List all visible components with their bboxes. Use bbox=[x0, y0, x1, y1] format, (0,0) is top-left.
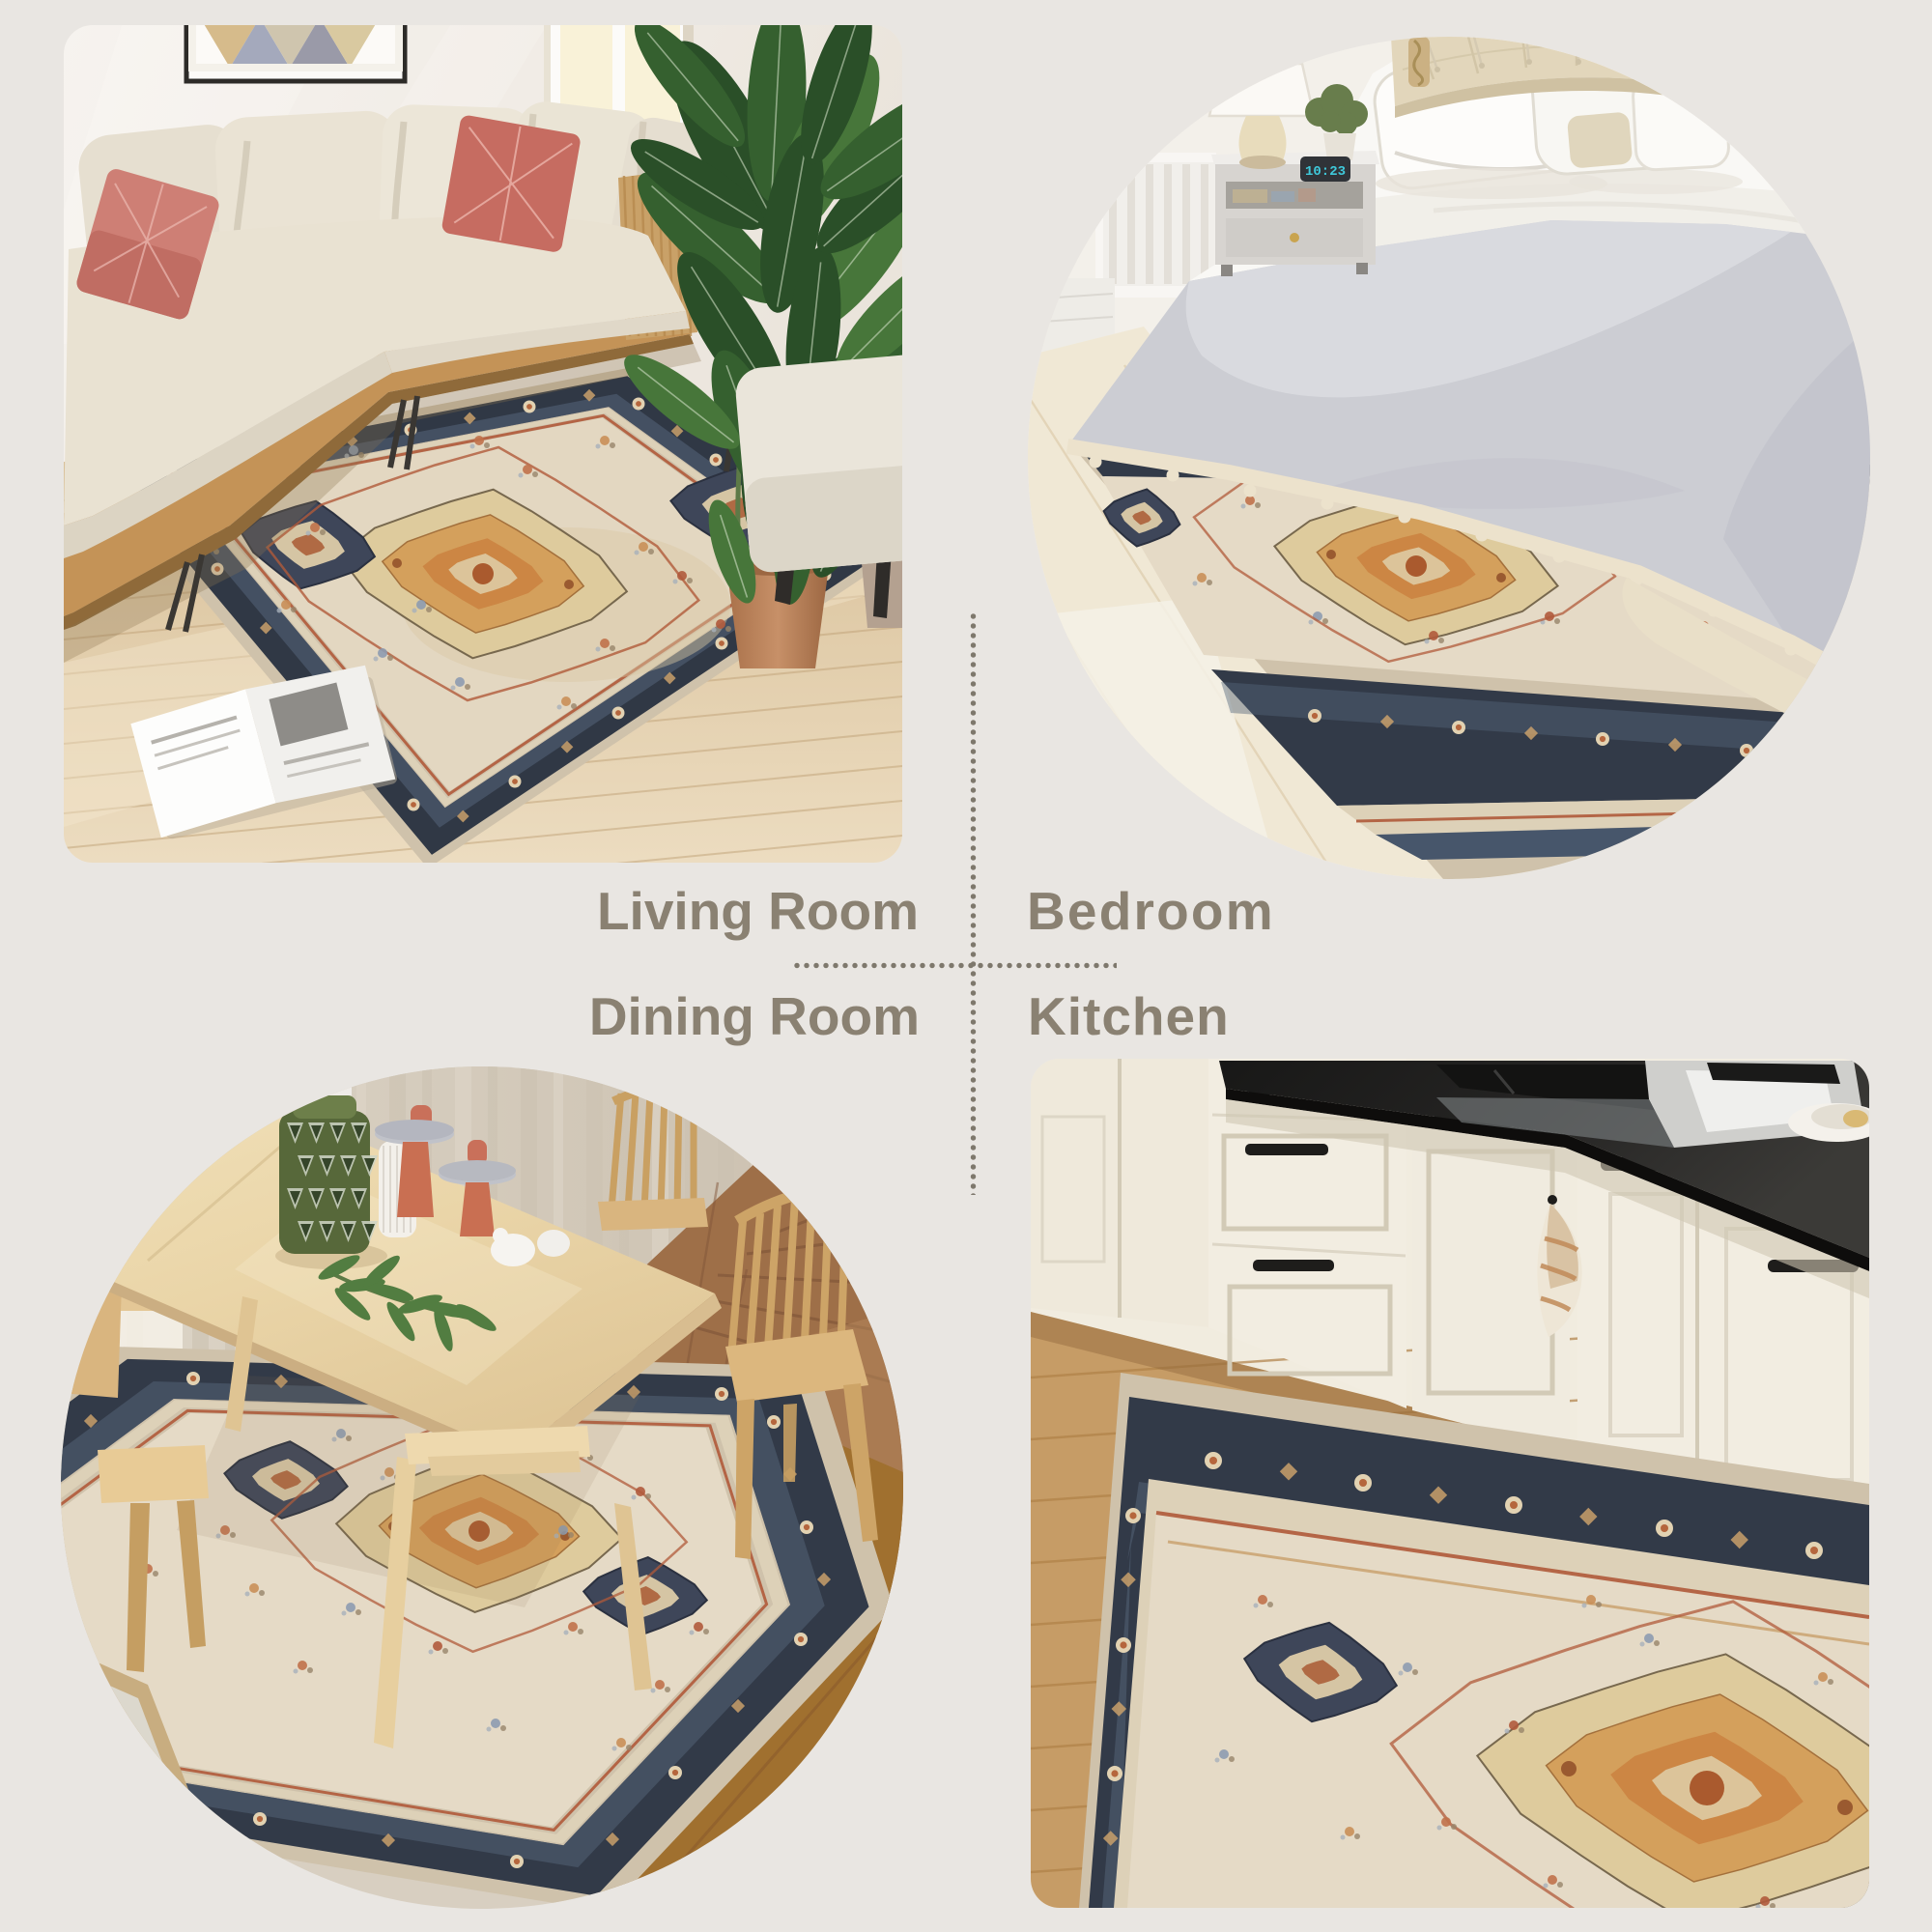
svg-text:10:23: 10:23 bbox=[1305, 164, 1346, 180]
